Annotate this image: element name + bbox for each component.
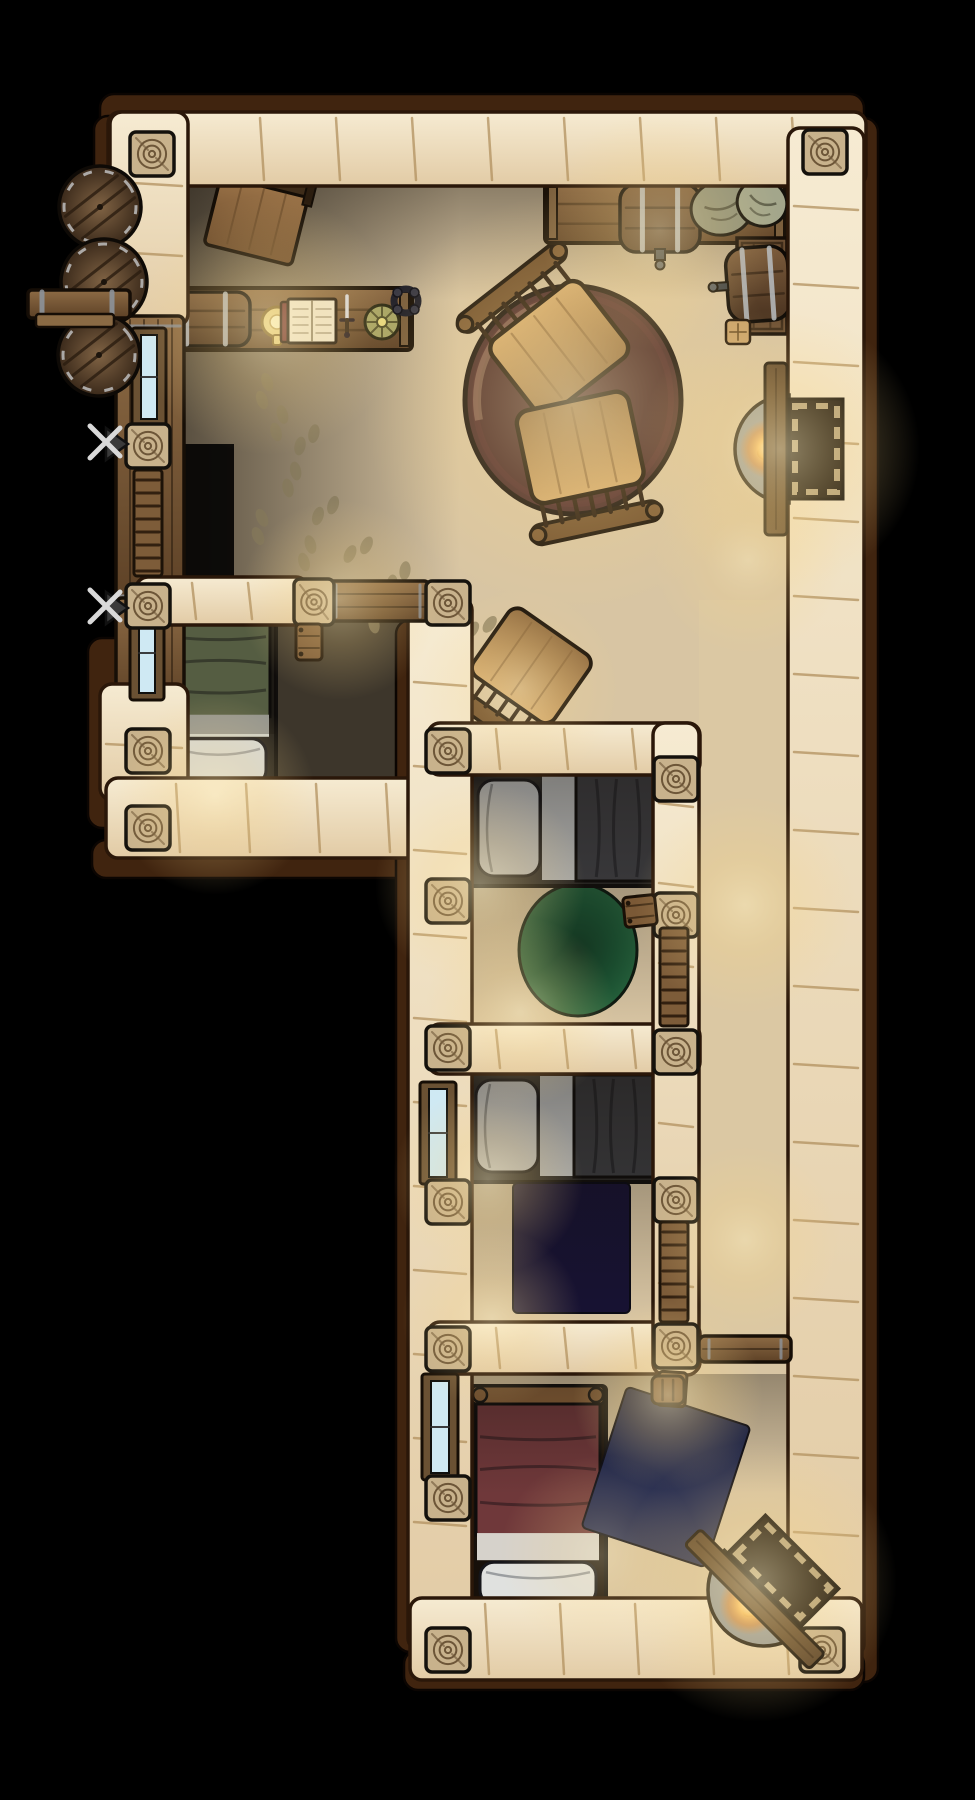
light-wing-bottom: [115, 695, 315, 895]
light-bunk2-south: [402, 1228, 582, 1408]
light-corridor-mid: [635, 795, 855, 1015]
wall-pillar: [126, 584, 170, 628]
light-corridor-low: [650, 1145, 840, 1335]
wall-pillar: [654, 1030, 698, 1074]
light-bottom-room: [500, 1455, 700, 1655]
light-bunk1-south: [425, 917, 615, 1107]
wall-pillar: [126, 424, 170, 468]
wall-pillar: [654, 757, 698, 801]
ladder-left-wall[interactable]: [134, 470, 162, 576]
bench-outside: [28, 290, 130, 327]
wall-pillar: [130, 132, 174, 176]
wall-pillar: [426, 1476, 470, 1520]
light-hall-chair: [420, 588, 620, 788]
wall-pillar: [426, 1628, 470, 1672]
light-corridor-top: [653, 465, 843, 655]
light-counter: [138, 195, 398, 455]
map-canvas: [0, 0, 975, 1800]
tavern-battle-map: [0, 0, 975, 1800]
light-wing-door: [240, 500, 440, 700]
wall-pillar: [803, 130, 847, 174]
